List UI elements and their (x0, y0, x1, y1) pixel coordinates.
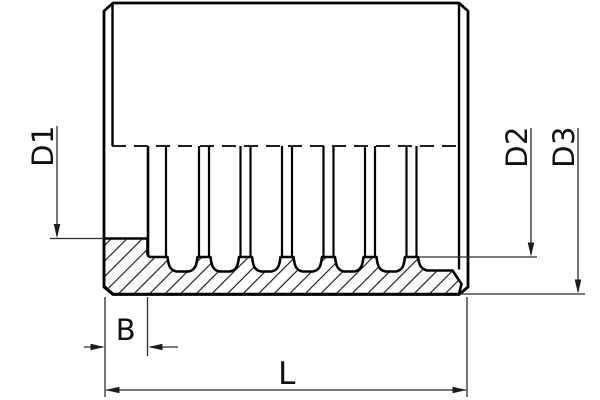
dim-label-l: L (278, 356, 296, 392)
b-arrowhead-right (91, 344, 105, 351)
dim-label-d2: D2 (500, 126, 534, 168)
outer-contour (104, 3, 468, 295)
dim-label-d3: D3 (547, 126, 581, 168)
b-arrowhead-left (148, 344, 162, 351)
serration-groove-walls (148, 146, 417, 256)
l-arrowhead-right (453, 387, 467, 394)
ferrule-section-drawing: D1 D2 D3 B L (0, 0, 600, 400)
ferrule-outline (104, 3, 468, 295)
d3-arrowhead-down (575, 280, 582, 294)
technical-drawing-canvas: D1 D2 D3 B L (0, 0, 600, 400)
dim-label-d1: D1 (26, 125, 60, 167)
d2-arrowhead-down (528, 243, 535, 257)
l-arrowhead-left (105, 387, 119, 394)
dim-label-b: B (116, 313, 136, 347)
d1-arrowhead-down (54, 224, 61, 238)
